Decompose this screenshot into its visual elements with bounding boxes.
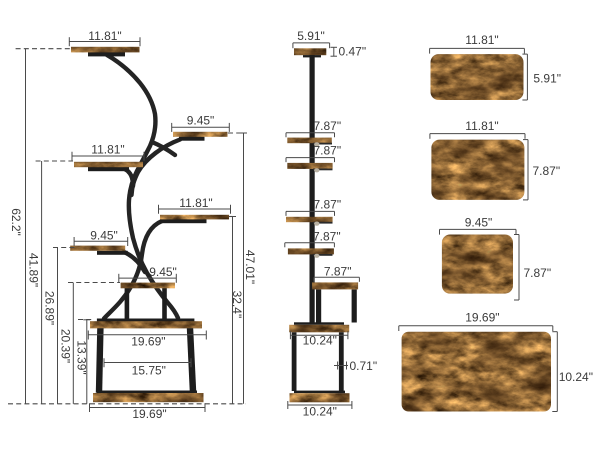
svg-text:15.75": 15.75": [132, 364, 166, 378]
svg-text:7.87": 7.87": [533, 164, 561, 178]
svg-text:11.81": 11.81": [465, 119, 498, 133]
svg-text:11.81": 11.81": [88, 29, 121, 43]
svg-text:7.87": 7.87": [524, 266, 552, 280]
svg-text:9.45": 9.45": [465, 216, 493, 230]
svg-text:62.2": 62.2": [9, 208, 23, 236]
svg-text:20.39": 20.39": [59, 329, 73, 363]
svg-text:5.91": 5.91": [533, 72, 561, 86]
svg-text:0.71": 0.71": [350, 359, 378, 373]
svg-text:7.87": 7.87": [313, 229, 341, 243]
svg-text:10.24": 10.24": [303, 334, 337, 348]
svg-text:41.89": 41.89": [26, 253, 40, 287]
svg-text:9.45": 9.45": [187, 114, 215, 128]
svg-text:19.69": 19.69": [131, 335, 165, 349]
svg-text:7.87": 7.87": [313, 119, 341, 133]
svg-text:5.91": 5.91": [297, 29, 325, 43]
svg-text:11.81": 11.81": [465, 33, 498, 47]
svg-text:7.87": 7.87": [313, 198, 341, 212]
svg-text:26.89": 26.89": [43, 291, 57, 325]
svg-text:9.45": 9.45": [149, 265, 177, 279]
svg-text:7.87": 7.87": [324, 264, 352, 278]
svg-text:7.87": 7.87": [313, 144, 341, 158]
svg-text:11.81": 11.81": [179, 196, 212, 210]
svg-text:10.24": 10.24": [559, 370, 593, 384]
svg-text:32.4": 32.4": [230, 291, 244, 319]
svg-text:47.01": 47.01": [243, 250, 257, 284]
svg-text:9.45": 9.45": [90, 228, 118, 242]
svg-text:11.81": 11.81": [91, 143, 124, 157]
svg-text:10.24": 10.24": [303, 405, 337, 419]
svg-text:0.47": 0.47": [339, 45, 367, 59]
svg-text:19.69": 19.69": [465, 310, 499, 324]
svg-text:13.39": 13.39": [75, 340, 89, 374]
svg-text:19.69": 19.69": [132, 407, 166, 421]
